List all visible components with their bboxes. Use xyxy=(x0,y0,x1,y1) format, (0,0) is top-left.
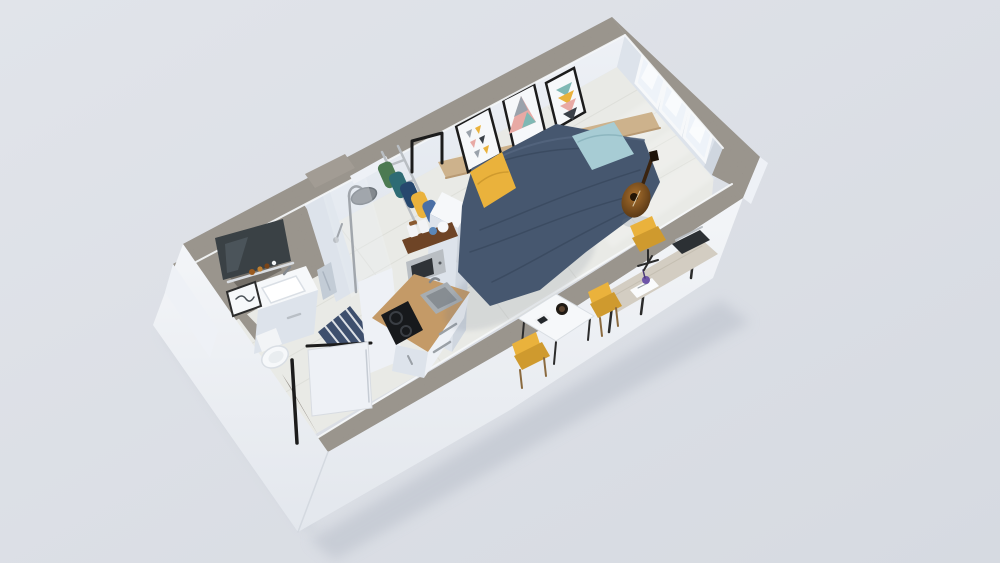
blue-cup xyxy=(429,227,437,235)
microwave-knob xyxy=(439,262,442,265)
white-bottle xyxy=(272,261,276,265)
amber-bottle xyxy=(257,266,262,271)
teapot xyxy=(438,222,449,233)
floorplan-render: 3D isometric cutaway render of a studio … xyxy=(0,0,1000,563)
amber-bottle xyxy=(264,263,269,268)
coffee xyxy=(559,306,565,312)
pen-cup xyxy=(642,276,650,284)
amber-bottle xyxy=(249,269,255,275)
door-leaf xyxy=(308,342,372,416)
scene-svg: 3D isometric cutaway render of a studio … xyxy=(0,0,1000,563)
